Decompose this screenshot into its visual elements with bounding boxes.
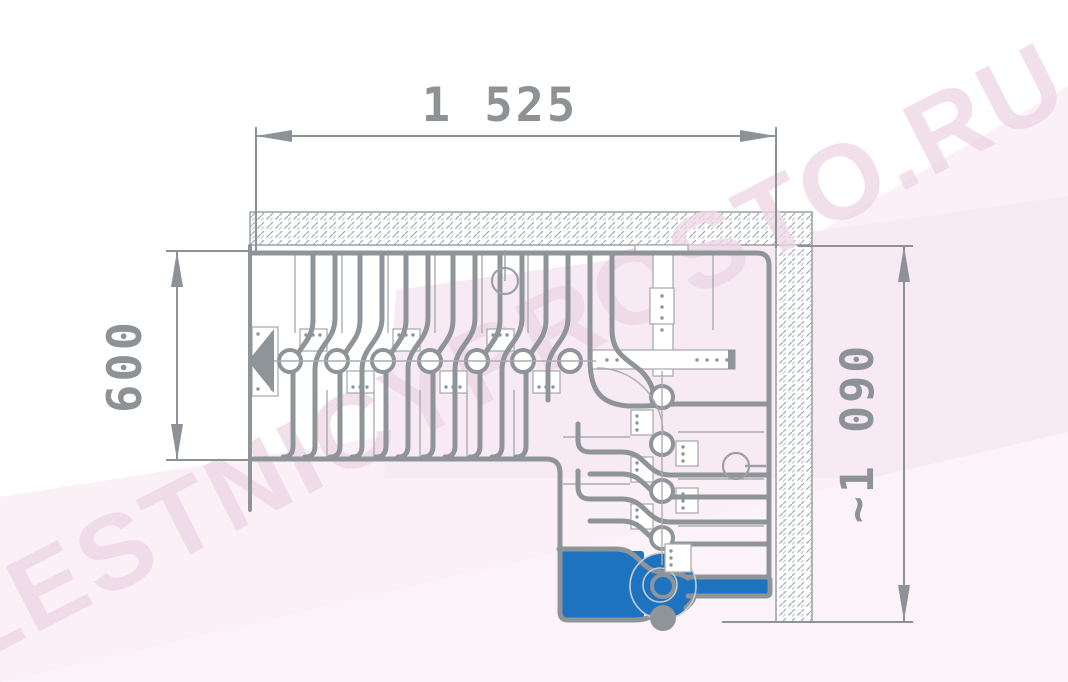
support-post	[650, 605, 676, 631]
dimension-side-label: ~1 090	[831, 343, 884, 524]
first-step-plate	[665, 544, 691, 572]
dimension-depth-label: 600	[98, 319, 153, 413]
beam-end-cap	[728, 350, 735, 369]
corner-beam-horizontal	[592, 350, 735, 369]
staircase-plan-drawing: LESTNICYPROSTO.RU	[0, 0, 1068, 682]
dimension-width-label: 1 525	[422, 78, 578, 133]
right-wall	[776, 245, 812, 622]
